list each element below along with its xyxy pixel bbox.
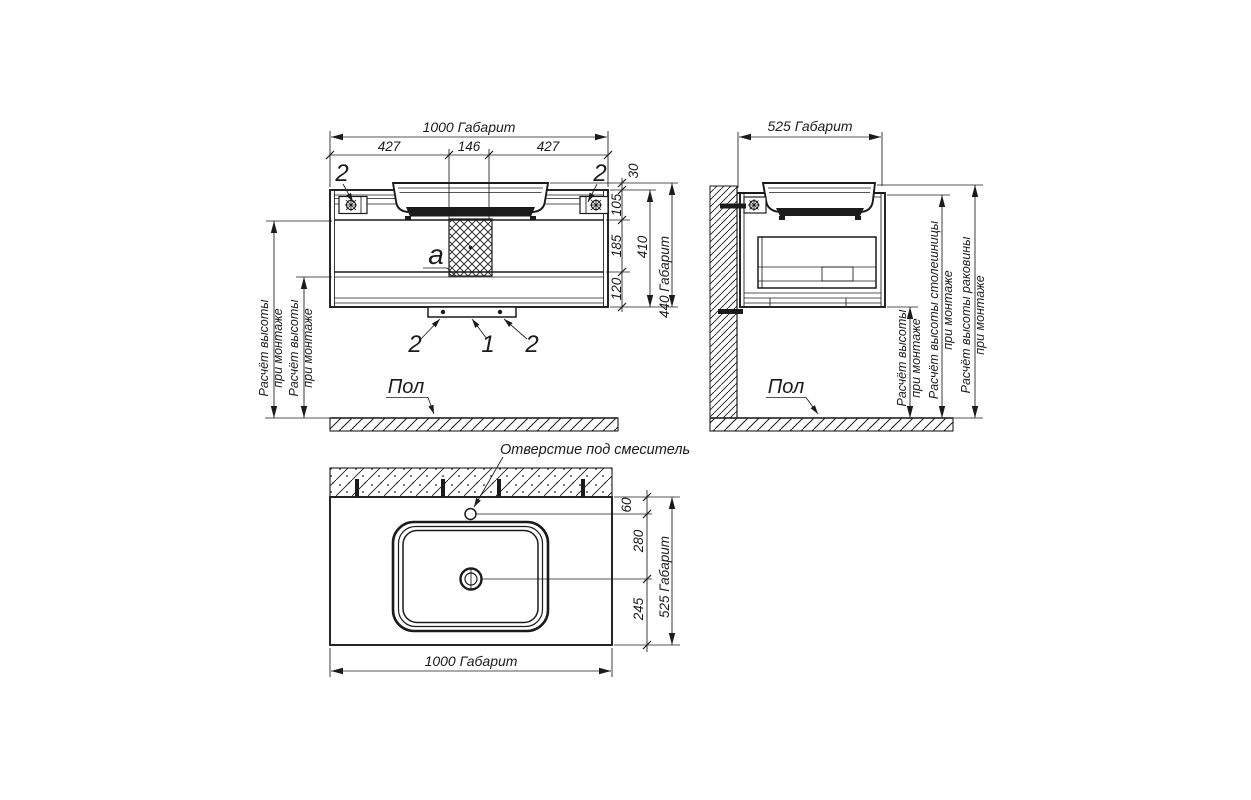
- callout-1-bottom: 1: [481, 331, 494, 358]
- basin-front: [393, 183, 548, 220]
- wall-anchor-top: [720, 204, 746, 209]
- callout-2-bottom-left: 2: [407, 331, 421, 358]
- drain: [461, 569, 482, 590]
- mount-note-2-line1: Расчёт высоты: [287, 300, 301, 397]
- dim-label-60: 60: [619, 497, 634, 513]
- mount-note-1-line2: при монтаже: [271, 308, 285, 387]
- mounting-bracket-left: [339, 197, 367, 214]
- callout-2-bottom-right: 2: [524, 331, 538, 358]
- technical-drawing-sheet: a 2 2 2 1 2: [0, 0, 1251, 800]
- mount-note-2-line2: при монтаже: [301, 308, 315, 387]
- basin-note-line2: при монтаже: [973, 275, 987, 354]
- dim-label-105: 105: [609, 193, 624, 216]
- mount-note-1-line1: Расчёт высоты: [257, 300, 271, 397]
- wall-anchor-bottom: [718, 309, 743, 314]
- basin-note-line1: Расчёт высоты раковины: [959, 237, 973, 394]
- dim-label-1000-front: 1000 Габарит: [423, 119, 516, 135]
- wall-section-side: [710, 186, 737, 418]
- dim-label-427-right: 427: [537, 139, 560, 154]
- bottom-mounting-strip: [428, 307, 516, 317]
- callout-2-top-left: 2: [334, 160, 348, 187]
- vent-hatch-panel: [449, 219, 492, 276]
- side-mount-note-line1: Расчёт высоты: [895, 310, 909, 407]
- dim-label-525-side: 525 Габарит: [767, 118, 852, 134]
- dim-label-440: 440 Габарит: [657, 236, 672, 318]
- mounting-bracket-side: [744, 197, 766, 213]
- faucet-hole-label: Отверстие под смеситель: [500, 442, 690, 458]
- floor-label-side: Пол: [768, 376, 804, 398]
- mounting-bracket-right: [580, 197, 608, 214]
- side-mount-note-line2: при монтаже: [909, 318, 923, 397]
- dim-label-525-plan: 525 Габарит: [657, 536, 672, 618]
- callout-a-label: a: [428, 239, 444, 270]
- dim-label-245: 245: [631, 597, 646, 621]
- dim-label-280: 280: [631, 529, 646, 553]
- wall-section-plan: [330, 468, 612, 500]
- dim-label-146: 146: [458, 139, 481, 154]
- dim-label-410: 410: [635, 235, 650, 258]
- faucet-hole: [465, 509, 476, 520]
- dim-label-30: 30: [626, 163, 641, 179]
- dim-label-427-left: 427: [378, 139, 401, 154]
- dim-label-120: 120: [609, 277, 624, 300]
- countertop-note-line2: при монтаже: [941, 270, 955, 349]
- dim-label-1000-plan: 1000 Габарит: [425, 653, 518, 669]
- vanity-installation-drawing: a 2 2 2 1 2: [0, 0, 1251, 800]
- countertop-note-line1: Расчёт высоты столешницы: [927, 221, 941, 399]
- dim-label-185: 185: [609, 234, 624, 257]
- basin-side: [763, 183, 875, 220]
- paper-background: [0, 0, 1251, 800]
- floor-label-front: Пол: [388, 376, 424, 398]
